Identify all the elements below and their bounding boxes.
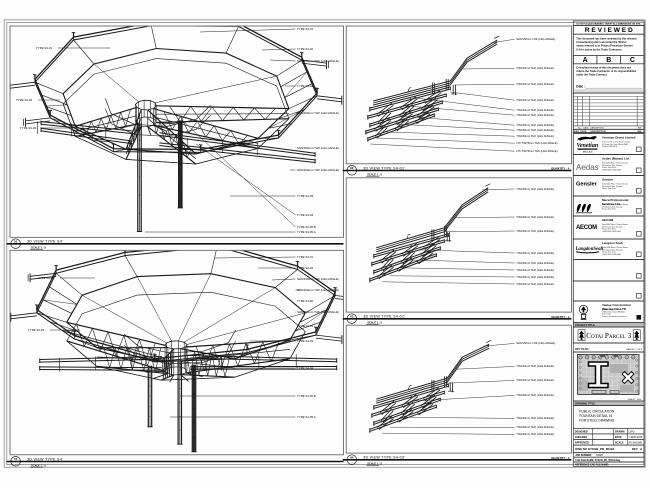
svg-text:TYPE S4-05 B: TYPE S4-05 B	[297, 225, 316, 229]
svg-text:TYPE S4-05 B: TYPE S4-05 B	[297, 394, 316, 398]
svg-text:SHS/150mm THK (L&G ANGLE): SHS/150mm THK (L&G ANGLE)	[297, 168, 339, 172]
svg-text:SHS/150mm THK (L&G ANGLE): SHS/150mm THK (L&G ANGLE)	[297, 59, 339, 63]
svg-text:T/S/150mm THK (L&G ANGLE): T/S/150mm THK (L&G ANGLE)	[516, 98, 554, 102]
svg-text:T/S/150mm THK (L&G ANGLE): T/S/150mm THK (L&G ANGLE)	[516, 82, 554, 86]
svg-text:APPROVED: APPROVED	[575, 442, 589, 445]
svg-text:T/S/150mm THK (L&G ANGLE): T/S/150mm THK (L&G ANGLE)	[516, 108, 554, 112]
svg-text:PUBLIC CIRCULATION: PUBLIC CIRCULATION	[579, 410, 615, 414]
svg-text:T/S/150mm THK (L&G ANGLE): T/S/150mm THK (L&G ANGLE)	[516, 282, 554, 286]
svg-text:TYPE S4-02: TYPE S4-02	[297, 47, 313, 51]
svg-text:CAD FILE NAME: SYSUB_PD_85404.: CAD FILE NAME: SYSUB_PD_85404.dwg	[575, 459, 620, 462]
svg-text:SCALE 1 : 5: SCALE 1 : 5	[31, 246, 46, 250]
svg-text:T/S/150mm THK (L&G ANGLE): T/S/150mm THK (L&G ANGLE)	[516, 432, 554, 436]
svg-text:Venetian: Venetian	[577, 143, 599, 149]
svg-text:31520: 31520	[596, 454, 603, 457]
svg-text:TYPE S4-02: TYPE S4-02	[297, 266, 313, 270]
svg-text:T/S/150mm THK (L&G ANGLE): T/S/150mm THK (L&G ANGLE)	[516, 416, 554, 420]
svg-text:TYPE S4-03: TYPE S4-03	[297, 324, 313, 328]
svg-text:AECOM: AECOM	[576, 225, 597, 231]
svg-text:T/S/150mm THK (L&G ANGLE): T/S/150mm THK (L&G ANGLE)	[516, 215, 554, 219]
svg-text:CHECKED: CHECKED	[575, 436, 588, 439]
svg-text:7-APR-2015: 7-APR-2015	[629, 436, 643, 439]
svg-text:-: -	[15, 463, 16, 466]
svg-text:Gensler: Gensler	[576, 182, 598, 188]
svg-text:SHS/150mm THK (L&G ANGLE): SHS/150mm THK (L&G ANGLE)	[297, 111, 339, 115]
svg-text:PARCEL 1 OF 3: PARCEL 1 OF 3	[626, 348, 643, 351]
svg-text:SCALE 1 : 5: SCALE 1 : 5	[367, 462, 382, 466]
svg-text:Services Ltd.: Services Ltd.	[602, 202, 621, 206]
svg-text:SHS/150mm THK (L&G ANGLE): SHS/150mm THK (L&G ANGLE)	[297, 288, 339, 292]
svg-text:COTAI PARCEL 3: COTAI PARCEL 3	[586, 332, 631, 340]
svg-text:T/S/150mm THK (L&G ANGLE): T/S/150mm THK (L&G ANGLE)	[516, 261, 554, 265]
svg-text:DRAWING TITLE: DRAWING TITLE	[575, 403, 595, 406]
svg-text:DESCRIPTION: DESCRIPTION	[591, 131, 606, 133]
svg-text:A: A	[583, 57, 588, 64]
svg-text:01: 01	[14, 457, 18, 461]
svg-text:Aedas (Macau) Ltd.: Aedas (Macau) Ltd.	[602, 157, 630, 161]
svg-text:TYPE S4-03: TYPE S4-03	[28, 328, 44, 332]
svg-text:TYPE S4-02: TYPE S4-02	[38, 276, 54, 280]
svg-text:T/S/150mm THK (L&G ANGLE): T/S/150mm THK (L&G ANGLE)	[516, 378, 554, 382]
svg-text:-: -	[351, 462, 352, 465]
svg-text:-: -	[15, 246, 16, 249]
svg-text:SCALE 1 : 5: SCALE 1 : 5	[367, 172, 382, 176]
svg-text:Langdon Seah: Langdon Seah	[602, 241, 623, 245]
svg-text:SCALE: SCALE	[615, 442, 624, 445]
svg-text:TYPE S4-01: TYPE S4-01	[297, 27, 313, 31]
svg-text:5.4 for action by the Tra: 5.4 for action by the Trade Contractor.	[576, 47, 622, 51]
svg-text:T/S/150mm THK (L&G ANGLE): T/S/150mm THK (L&G ANGLE)	[516, 123, 554, 127]
svg-text:DESIGNED: DESIGNED	[575, 430, 588, 433]
svg-text:QUANTITY : 4: QUANTITY : 4	[551, 456, 570, 460]
svg-text:SHS/150mm THK (L&G ANGLE): SHS/150mm THK (L&G ANGLE)	[297, 310, 339, 314]
svg-text:T/S/150mm THK (L&G ANGLE): T/S/150mm THK (L&G ANGLE)	[516, 393, 554, 397]
svg-text:SHS/150mm THK (L&G ANGLE): SHS/150mm THK (L&G ANGLE)	[297, 277, 339, 281]
svg-text:REFERENCE CAD FILE NAME:: REFERENCE CAD FILE NAME:	[575, 463, 609, 466]
svg-text:REV: REV	[632, 447, 638, 451]
svg-text:T/S/150mm THK (L&G ANGLE): T/S/150mm THK (L&G ANGLE)	[516, 275, 554, 279]
svg-text:TYPE S4-05 A: TYPE S4-05 A	[297, 415, 316, 419]
svg-text:TYPE S4-03: TYPE S4-03	[297, 194, 313, 198]
svg-text:t 0000 0000 f 0000 0000: t 0000 0000 f 0000 0000	[602, 168, 621, 171]
svg-text:B: B	[606, 57, 611, 64]
svg-text:TYPE S4-03: TYPE S4-03	[20, 126, 36, 130]
svg-text:DRAWN: DRAWN	[615, 430, 625, 433]
svg-text:TYPE S4-02: TYPE S4-02	[16, 98, 32, 102]
svg-text:FOR STEEL DRAWING: FOR STEEL DRAWING	[579, 419, 614, 423]
svg-text:KEY PLAN: KEY PLAN	[575, 347, 588, 351]
svg-text:INIT: INIT	[638, 131, 643, 133]
svg-text:SCALE 1 : 5: SCALE 1 : 5	[31, 463, 46, 467]
svg-text:QUANTITY : 4: QUANTITY : 4	[551, 315, 570, 319]
svg-text:(Macau) CO. LTD.: (Macau) CO. LTD.	[602, 307, 627, 311]
svg-text:T/S/150mm THK (L&G ANGLE): T/S/150mm THK (L&G ANGLE)	[516, 134, 554, 138]
svg-text:SHS/150mm THK (L&G ANGLE): SHS/150mm THK (L&G ANGLE)	[516, 341, 555, 345]
svg-text:JOB NUMBER: JOB NUMBER	[575, 454, 591, 457]
svg-text:Consultant review of this: Consultant review of this document does …	[576, 66, 631, 70]
svg-text:status referred to in Proj: status referred to in Project Procedure …	[576, 44, 633, 48]
svg-text:PROJECT TITLE: PROJECT TITLE	[575, 324, 595, 327]
svg-text:DO NOT SCALE DRAWING. VERIFY A: DO NOT SCALE DRAWING. VERIFY ALL DIMENSI…	[577, 22, 642, 25]
svg-text:TYPE S4-04: TYPE S4-04	[297, 213, 313, 217]
svg-text:C: C	[630, 57, 635, 64]
svg-text:R E V I E W E D: R E V I E W E D	[585, 27, 633, 34]
svg-text:Xxxxx, Xxxx Xxxx: Xxxxx, Xxxx Xxxx	[602, 209, 616, 211]
svg-text:AS SHOWN: AS SHOWN	[629, 442, 643, 445]
svg-text:Gensler: Gensler	[602, 178, 614, 182]
svg-text:relieve the Trade Contractor: relieve the Trade Contractor of its resp…	[576, 69, 637, 73]
svg-text:Aedas: Aedas	[576, 163, 599, 172]
svg-text:FOUNTAIN DETAIL 01: FOUNTAIN DETAIL 01	[579, 414, 612, 418]
svg-text:L75 T/S/75mm THK (L&G ANGLE): L75 T/S/75mm THK (L&G ANGLE)	[516, 149, 557, 153]
svg-text:03: 03	[350, 314, 354, 318]
svg-text:SCALE 1 : 5: SCALE 1 : 5	[367, 321, 382, 325]
svg-text:Consultant(s) and is accord: Consultant(s) and is accorded the 'Works…	[576, 40, 627, 44]
svg-text:DATE: DATE	[581, 130, 587, 133]
svg-text:T/S/150mm THK (L&G ANGLE): T/S/150mm THK (L&G ANGLE)	[516, 229, 554, 233]
svg-text:T/S/150mm THK (L&G ANGLE): T/S/150mm THK (L&G ANGLE)	[516, 251, 554, 255]
svg-text:AECOM: AECOM	[602, 218, 614, 222]
svg-text:CWO: CWO	[629, 430, 635, 433]
svg-text:t 0000 0000 f 0000 0000: t 0000 0000 f 0000 0000	[602, 230, 621, 233]
svg-text:TYPE S4-05 A: TYPE S4-05 A	[297, 230, 316, 234]
svg-text:-: -	[351, 321, 352, 324]
svg-text:DATE: DATE	[615, 436, 622, 439]
svg-text:01: 01	[14, 239, 18, 243]
svg-text:T/S/150mm THK (L&G ANGLE): T/S/150mm THK (L&G ANGLE)	[516, 364, 554, 368]
svg-text:t 0000 0000 f 0000 0000: t 0000 0000 f 0000 0000	[602, 253, 621, 256]
svg-text:T/S/150mm THK (L&G ANGLE): T/S/150mm THK (L&G ANGLE)	[516, 113, 554, 117]
svg-text:T/S/150mm THK (L&G ANGLE): T/S/150mm THK (L&G ANGLE)	[516, 187, 554, 191]
svg-text:-: -	[351, 172, 352, 175]
svg-text:TYPE S4-01: TYPE S4-01	[36, 46, 52, 50]
svg-text:SYSUB_PD_85404: SYSUB_PD_85404	[588, 447, 615, 451]
svg-text:Xxxxxxx Xxxxxxxxx xxx xxxxx: Xxxxxxx Xxxxxxxxx xxx xxxxx xx	[602, 316, 627, 318]
svg-text:QUANTITY : 4: QUANTITY : 4	[551, 167, 570, 171]
svg-text:SCALE 1 : 2500: SCALE 1 : 2500	[628, 398, 642, 401]
svg-text:TYPE S4-02: TYPE S4-02	[297, 84, 313, 88]
svg-text:Xxxxxx: 0000 00 00: Xxxxxx: 0000 00 00	[602, 146, 617, 148]
svg-text:T/S/150mm THK (L&G ANGLE): T/S/150mm THK (L&G ANGLE)	[516, 66, 554, 70]
svg-text:DWG NO :: DWG NO :	[575, 447, 589, 451]
svg-text:Date :: Date :	[576, 85, 585, 89]
svg-text:This document has been reviewe: This document has been reviewed by the r…	[576, 37, 636, 41]
svg-text:TYPE S4-02: TYPE S4-02	[297, 299, 313, 303]
svg-text:TYPE S4-01: TYPE S4-01	[297, 255, 313, 259]
svg-text:REV.: REV.	[574, 131, 579, 133]
svg-text:04: 04	[350, 455, 354, 459]
svg-text:T/S/150mm THK (L&G ANGLE): T/S/150mm THK (L&G ANGLE)	[516, 128, 554, 132]
svg-text:T/S/150mm THK (L&G ANGLE): T/S/150mm THK (L&G ANGLE)	[516, 268, 554, 272]
svg-text:under the Trade Contract.: under the Trade Contract.	[576, 73, 607, 77]
svg-text:Xxxxx, Xxxx Xxxx: Xxxxx, Xxxx Xxxx	[602, 188, 616, 190]
svg-text:M A C A O: M A C A O	[583, 151, 593, 154]
svg-text:SHS/150mm THK (L&G ANGLE): SHS/150mm THK (L&G ANGLE)	[297, 146, 339, 150]
svg-text:02: 02	[350, 166, 354, 170]
svg-text:TYPE S4-04: TYPE S4-04	[297, 339, 313, 343]
svg-text:LangdonSeah: LangdonSeah	[575, 247, 604, 252]
svg-text:SHS/150mm THK (L&G ANGLE): SHS/150mm THK (L&G ANGLE)	[516, 37, 555, 41]
svg-text:T/S/150mm THK (L&G ANGLE): T/S/150mm THK (L&G ANGLE)	[516, 425, 554, 429]
svg-text:L75 T/S/75mm THK (L&G ANGLE): L75 T/S/75mm THK (L&G ANGLE)	[516, 141, 557, 145]
svg-text:TYPE S4-04: TYPE S4-04	[297, 366, 313, 370]
svg-text:Venetian Orient Limited: Venetian Orient Limited	[602, 136, 636, 140]
